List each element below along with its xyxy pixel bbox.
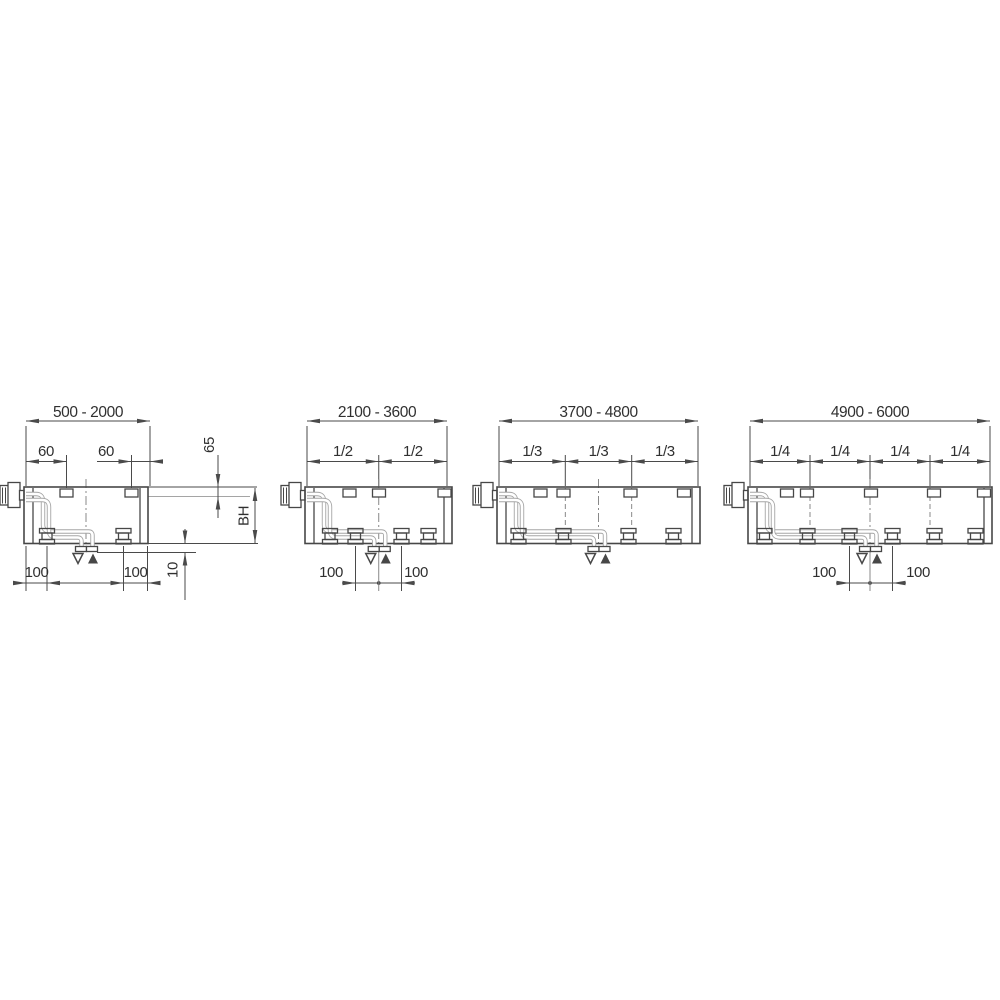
clamp-waist bbox=[930, 533, 940, 540]
pipe-layer bbox=[499, 494, 605, 547]
wall-bracket bbox=[438, 489, 451, 497]
dimension-arrowhead bbox=[183, 553, 188, 566]
dimension-arrowhead bbox=[307, 459, 320, 464]
pipe-clamp bbox=[621, 529, 636, 545]
dimension-arrowhead bbox=[216, 497, 221, 510]
segment-dimension-label: 1/4 bbox=[890, 443, 910, 460]
wall-bracket bbox=[928, 489, 941, 497]
dimension-arrowhead bbox=[434, 419, 447, 424]
dimension-arrowhead bbox=[685, 419, 698, 424]
dimension-arrowhead bbox=[499, 419, 512, 424]
segment-dimension-label: 60 bbox=[38, 443, 54, 460]
diagram-2100-3600: 2100 - 36001/21/2100100 bbox=[281, 404, 452, 591]
connector-body bbox=[289, 483, 301, 508]
clamp-waist bbox=[760, 533, 770, 540]
dimension-arrowhead bbox=[837, 581, 850, 586]
dimension-arrowhead bbox=[977, 459, 990, 464]
body-height-label: BH bbox=[236, 506, 253, 526]
dimension-arrowhead bbox=[870, 459, 883, 464]
diagram-500-2000: 500 - 2000606010010065BH10 bbox=[0, 404, 258, 600]
dimension-arrowhead bbox=[434, 459, 447, 464]
segment-dimension-label: 1/3 bbox=[589, 443, 609, 460]
flow-return-triangle-down-icon bbox=[857, 554, 867, 564]
length-range-label: 500 - 2000 bbox=[53, 404, 124, 421]
pipe-connector bbox=[724, 483, 748, 508]
clamp-top-flange bbox=[394, 529, 409, 534]
dimension-arrowhead bbox=[552, 459, 565, 464]
dimension-arrowhead bbox=[150, 459, 163, 464]
return-stub-cap bbox=[860, 547, 871, 552]
dimension-arrowhead bbox=[148, 581, 161, 586]
clamp-top-flange bbox=[885, 529, 900, 534]
connector-cap bbox=[0, 486, 9, 506]
flow-supply-triangle-up-icon bbox=[381, 554, 391, 564]
dimension-arrowhead bbox=[565, 459, 578, 464]
bottom-dimension-label: 100 bbox=[404, 564, 428, 581]
clamp-waist bbox=[971, 533, 981, 540]
dimension-arrowhead bbox=[977, 419, 990, 424]
dimension-arrowhead bbox=[253, 530, 258, 543]
wall-bracket bbox=[678, 489, 691, 497]
wall-bracket bbox=[624, 489, 637, 497]
clamp-top-flange bbox=[927, 529, 942, 534]
flow-return-triangle-down-icon bbox=[73, 554, 83, 564]
dimension-arrowhead bbox=[26, 459, 39, 464]
length-range-label: 2100 - 3600 bbox=[338, 404, 417, 421]
pipe-clamp bbox=[927, 529, 942, 545]
dimension-arrowhead bbox=[379, 459, 392, 464]
dimension-arrowhead bbox=[499, 459, 512, 464]
clamp-top-flange bbox=[666, 529, 681, 534]
segment-dimension-label: 1/3 bbox=[655, 443, 675, 460]
connector-cap bbox=[281, 486, 290, 506]
wall-bracket bbox=[865, 489, 878, 497]
wall-bracket bbox=[60, 489, 73, 497]
installation-diagram-svg: 500 - 2000606010010065BH102100 - 36001/2… bbox=[0, 0, 1000, 1000]
dimension-arrowhead bbox=[119, 459, 132, 464]
bottom-dimension-label: 100 bbox=[25, 564, 49, 581]
segment-dimension-label: 1/3 bbox=[522, 443, 542, 460]
wall-bracket bbox=[534, 489, 547, 497]
length-range-label: 3700 - 4800 bbox=[559, 404, 638, 421]
bottom-dimension-label: 100 bbox=[124, 564, 148, 581]
segment-dimension-label: 1/2 bbox=[333, 443, 353, 460]
protrusion-dimension-label: 10 bbox=[165, 562, 182, 578]
wall-bracket bbox=[557, 489, 570, 497]
dimension-arrowhead bbox=[183, 531, 188, 544]
clamp-top-flange bbox=[421, 529, 436, 534]
dimension-arrowhead bbox=[111, 581, 124, 586]
wall-bracket bbox=[373, 489, 386, 497]
dimension-arrowhead bbox=[13, 581, 26, 586]
clamp-waist bbox=[624, 533, 634, 540]
dimension-arrowhead bbox=[750, 459, 763, 464]
connector-cap bbox=[724, 486, 733, 506]
connector-body bbox=[732, 483, 744, 508]
dimension-arrowhead bbox=[137, 419, 150, 424]
dimension-arrowhead bbox=[54, 459, 67, 464]
dimension-arrowhead bbox=[685, 459, 698, 464]
flow-supply-triangle-up-icon bbox=[872, 554, 882, 564]
clamp-waist bbox=[119, 533, 129, 540]
pipe-connector bbox=[281, 483, 305, 508]
dimension-arrowhead bbox=[917, 459, 930, 464]
pipe-clamp bbox=[666, 529, 681, 545]
connector-body bbox=[8, 483, 20, 508]
clamp-waist bbox=[424, 533, 434, 540]
dimension-arrowhead bbox=[216, 474, 221, 487]
clamp-waist bbox=[888, 533, 898, 540]
dimension-arrowhead bbox=[810, 459, 823, 464]
return-stub-cap bbox=[76, 547, 87, 552]
dimension-arrowhead bbox=[750, 419, 763, 424]
dimension-arrowhead bbox=[402, 581, 415, 586]
pipe-clamp bbox=[116, 529, 131, 545]
supply-stub-cap bbox=[599, 547, 610, 552]
dimension-arrowhead bbox=[253, 488, 258, 501]
flow-return-triangle-down-icon bbox=[366, 554, 376, 564]
dimension-arrowhead bbox=[893, 581, 906, 586]
clamp-top-flange bbox=[968, 529, 983, 534]
flow-supply-triangle-up-icon bbox=[88, 554, 98, 564]
pipe-clamp bbox=[421, 529, 436, 545]
diagram-4900-6000: 4900 - 60001/41/41/41/4100100 bbox=[724, 404, 992, 591]
flow-supply-triangle-up-icon bbox=[601, 554, 611, 564]
wall-bracket bbox=[343, 489, 356, 497]
pipe-clamp bbox=[394, 529, 409, 545]
length-range-label: 4900 - 6000 bbox=[831, 404, 910, 421]
segment-dimension-label: 60 bbox=[98, 443, 114, 460]
dimension-arrowhead bbox=[366, 459, 379, 464]
wall-bracket bbox=[781, 489, 794, 497]
dimension-arrowhead bbox=[930, 459, 943, 464]
dimension-arrowhead bbox=[343, 581, 356, 586]
segment-dimension-label: 1/4 bbox=[770, 443, 790, 460]
connector-body bbox=[481, 483, 493, 508]
return-stub-cap bbox=[588, 547, 599, 552]
segment-dimension-label: 1/2 bbox=[403, 443, 423, 460]
pipe-clamp bbox=[968, 529, 983, 545]
connector-cap bbox=[473, 486, 482, 506]
pipe-outline bbox=[307, 500, 374, 547]
dimension-arrowhead bbox=[632, 459, 645, 464]
wall-bracket bbox=[801, 489, 814, 497]
segment-dimension-label: 1/4 bbox=[950, 443, 970, 460]
return-stub-cap bbox=[368, 547, 379, 552]
diagram-3700-4800: 3700 - 48001/31/31/3 bbox=[473, 404, 700, 564]
bottom-dimension-label: 100 bbox=[812, 564, 836, 581]
dimension-arrowhead bbox=[26, 419, 39, 424]
dimension-arrowhead bbox=[857, 459, 870, 464]
pipe-connector bbox=[0, 483, 24, 508]
dimension-arrowhead bbox=[307, 419, 320, 424]
supply-stub-cap bbox=[379, 547, 390, 552]
clamp-waist bbox=[669, 533, 679, 540]
pipe-connector bbox=[473, 483, 497, 508]
wall-bracket bbox=[125, 489, 138, 497]
bottom-dimension-label: 100 bbox=[906, 564, 930, 581]
pipe-layer bbox=[26, 494, 93, 547]
pipe-clamp bbox=[885, 529, 900, 545]
flow-return-triangle-down-icon bbox=[586, 554, 596, 564]
supply-stub-cap bbox=[87, 547, 98, 552]
clamp-top-flange bbox=[116, 529, 131, 534]
clamp-top-flange bbox=[621, 529, 636, 534]
segment-dimension-label: 1/4 bbox=[830, 443, 850, 460]
dimension-arrowhead bbox=[619, 459, 632, 464]
technical-drawing-canvas: 500 - 2000606010010065BH102100 - 36001/2… bbox=[0, 0, 1000, 1000]
clamp-waist bbox=[397, 533, 407, 540]
dimension-arrowhead bbox=[797, 459, 810, 464]
supply-stub-cap bbox=[871, 547, 882, 552]
offset-dimension-label: 65 bbox=[201, 437, 218, 453]
bottom-dimension-label: 100 bbox=[319, 564, 343, 581]
pipe-layer bbox=[307, 494, 385, 547]
wall-bracket bbox=[978, 489, 991, 497]
dimension-arrowhead bbox=[47, 581, 60, 586]
